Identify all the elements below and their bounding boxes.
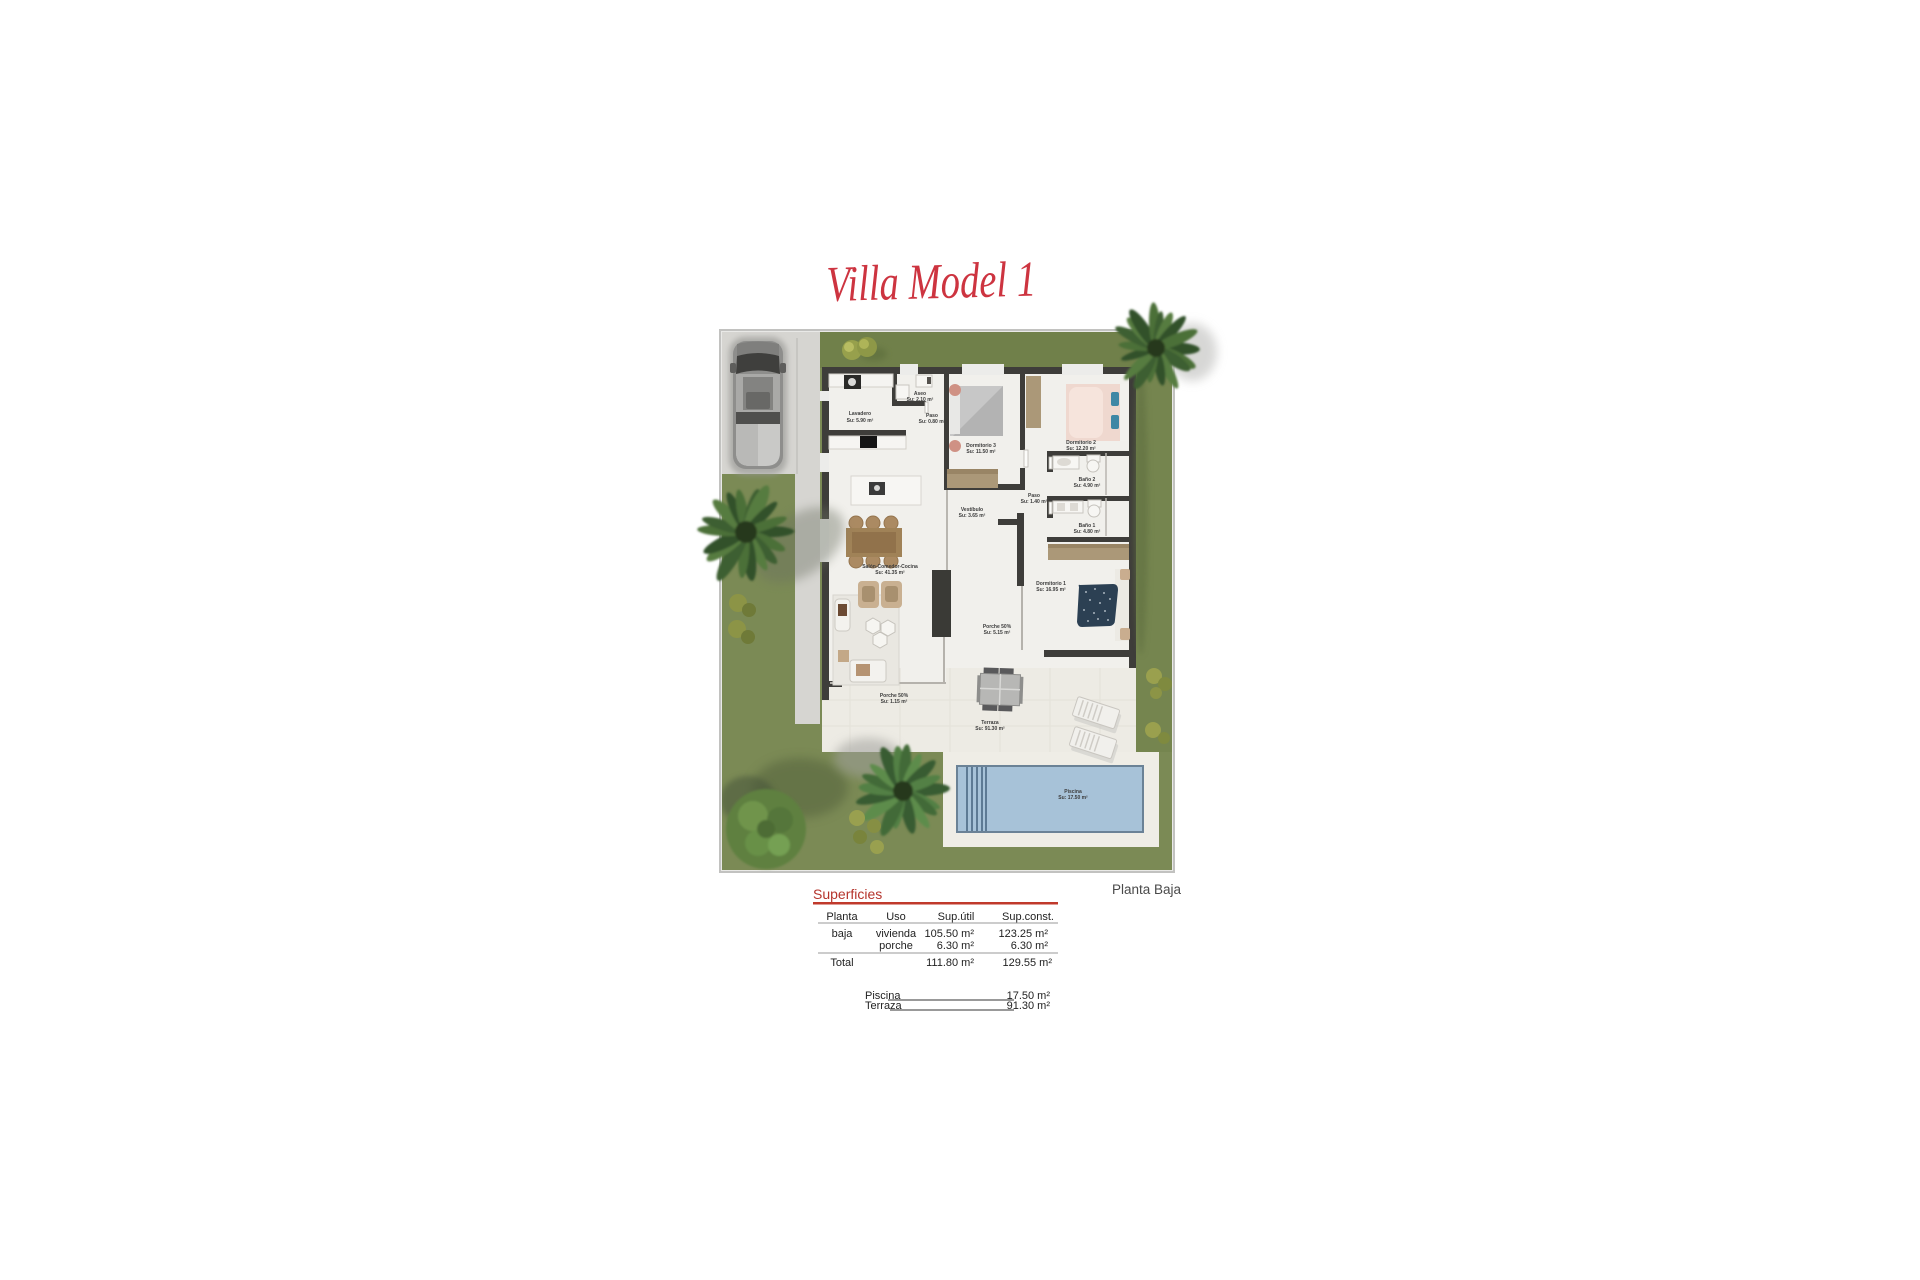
svg-text:Su: 5.90 m²: Su: 5.90 m² (847, 418, 874, 424)
svg-text:Su: 11.50 m²: Su: 11.50 m² (966, 449, 996, 455)
svg-text:111.80 m²: 111.80 m² (926, 957, 974, 969)
svg-text:Su: 0.80 m²: Su: 0.80 m² (919, 419, 946, 425)
svg-text:Su: 16.95 m²: Su: 16.95 m² (1036, 587, 1066, 593)
svg-text:Su: 12.20 m²: Su: 12.20 m² (1066, 446, 1096, 452)
svg-text:Villa Model 1: Villa Model 1 (826, 251, 1037, 313)
svg-text:105.50 m²: 105.50 m² (924, 928, 974, 940)
svg-text:porche: porche (879, 940, 913, 952)
svg-text:129.55 m²: 129.55 m² (1002, 957, 1052, 969)
svg-text:baja: baja (832, 928, 854, 940)
svg-text:Superficies: Superficies (813, 886, 882, 902)
svg-text:Su: 91.30 m²: Su: 91.30 m² (975, 726, 1005, 732)
svg-text:Sup.útil: Sup.útil (938, 911, 975, 923)
svg-text:Su: 2.10 m²: Su: 2.10 m² (907, 397, 934, 403)
svg-text:123.25 m²: 123.25 m² (998, 928, 1048, 940)
svg-text:Su: 17.50 m²: Su: 17.50 m² (1058, 795, 1088, 801)
svg-text:Planta Baja: Planta Baja (1112, 882, 1182, 897)
svg-text:Su: 1.15 m²: Su: 1.15 m² (881, 699, 908, 705)
svg-text:Su: 4.90 m²: Su: 4.90 m² (1074, 483, 1101, 489)
svg-text:Total: Total (830, 957, 853, 969)
svg-text:Lavadero: Lavadero (849, 411, 871, 417)
svg-text:6.30 m²: 6.30 m² (937, 940, 975, 952)
svg-text:Planta: Planta (826, 911, 858, 923)
svg-text:Su: 4.80 m²: Su: 4.80 m² (1074, 529, 1101, 535)
svg-text:Su: 1.40 m²: Su: 1.40 m² (1021, 499, 1048, 505)
svg-text:91.30 m²: 91.30 m² (1007, 1000, 1051, 1012)
svg-text:Sup.const.: Sup.const. (1002, 911, 1054, 923)
svg-text:Uso: Uso (886, 911, 906, 923)
svg-text:Su: 41.35 m²: Su: 41.35 m² (875, 570, 905, 576)
svg-text:Su: 5.15 m²: Su: 5.15 m² (984, 630, 1011, 636)
svg-text:Su: 3.65 m²: Su: 3.65 m² (959, 513, 986, 519)
svg-text:vivienda: vivienda (876, 928, 917, 940)
svg-text:6.30 m²: 6.30 m² (1011, 940, 1049, 952)
